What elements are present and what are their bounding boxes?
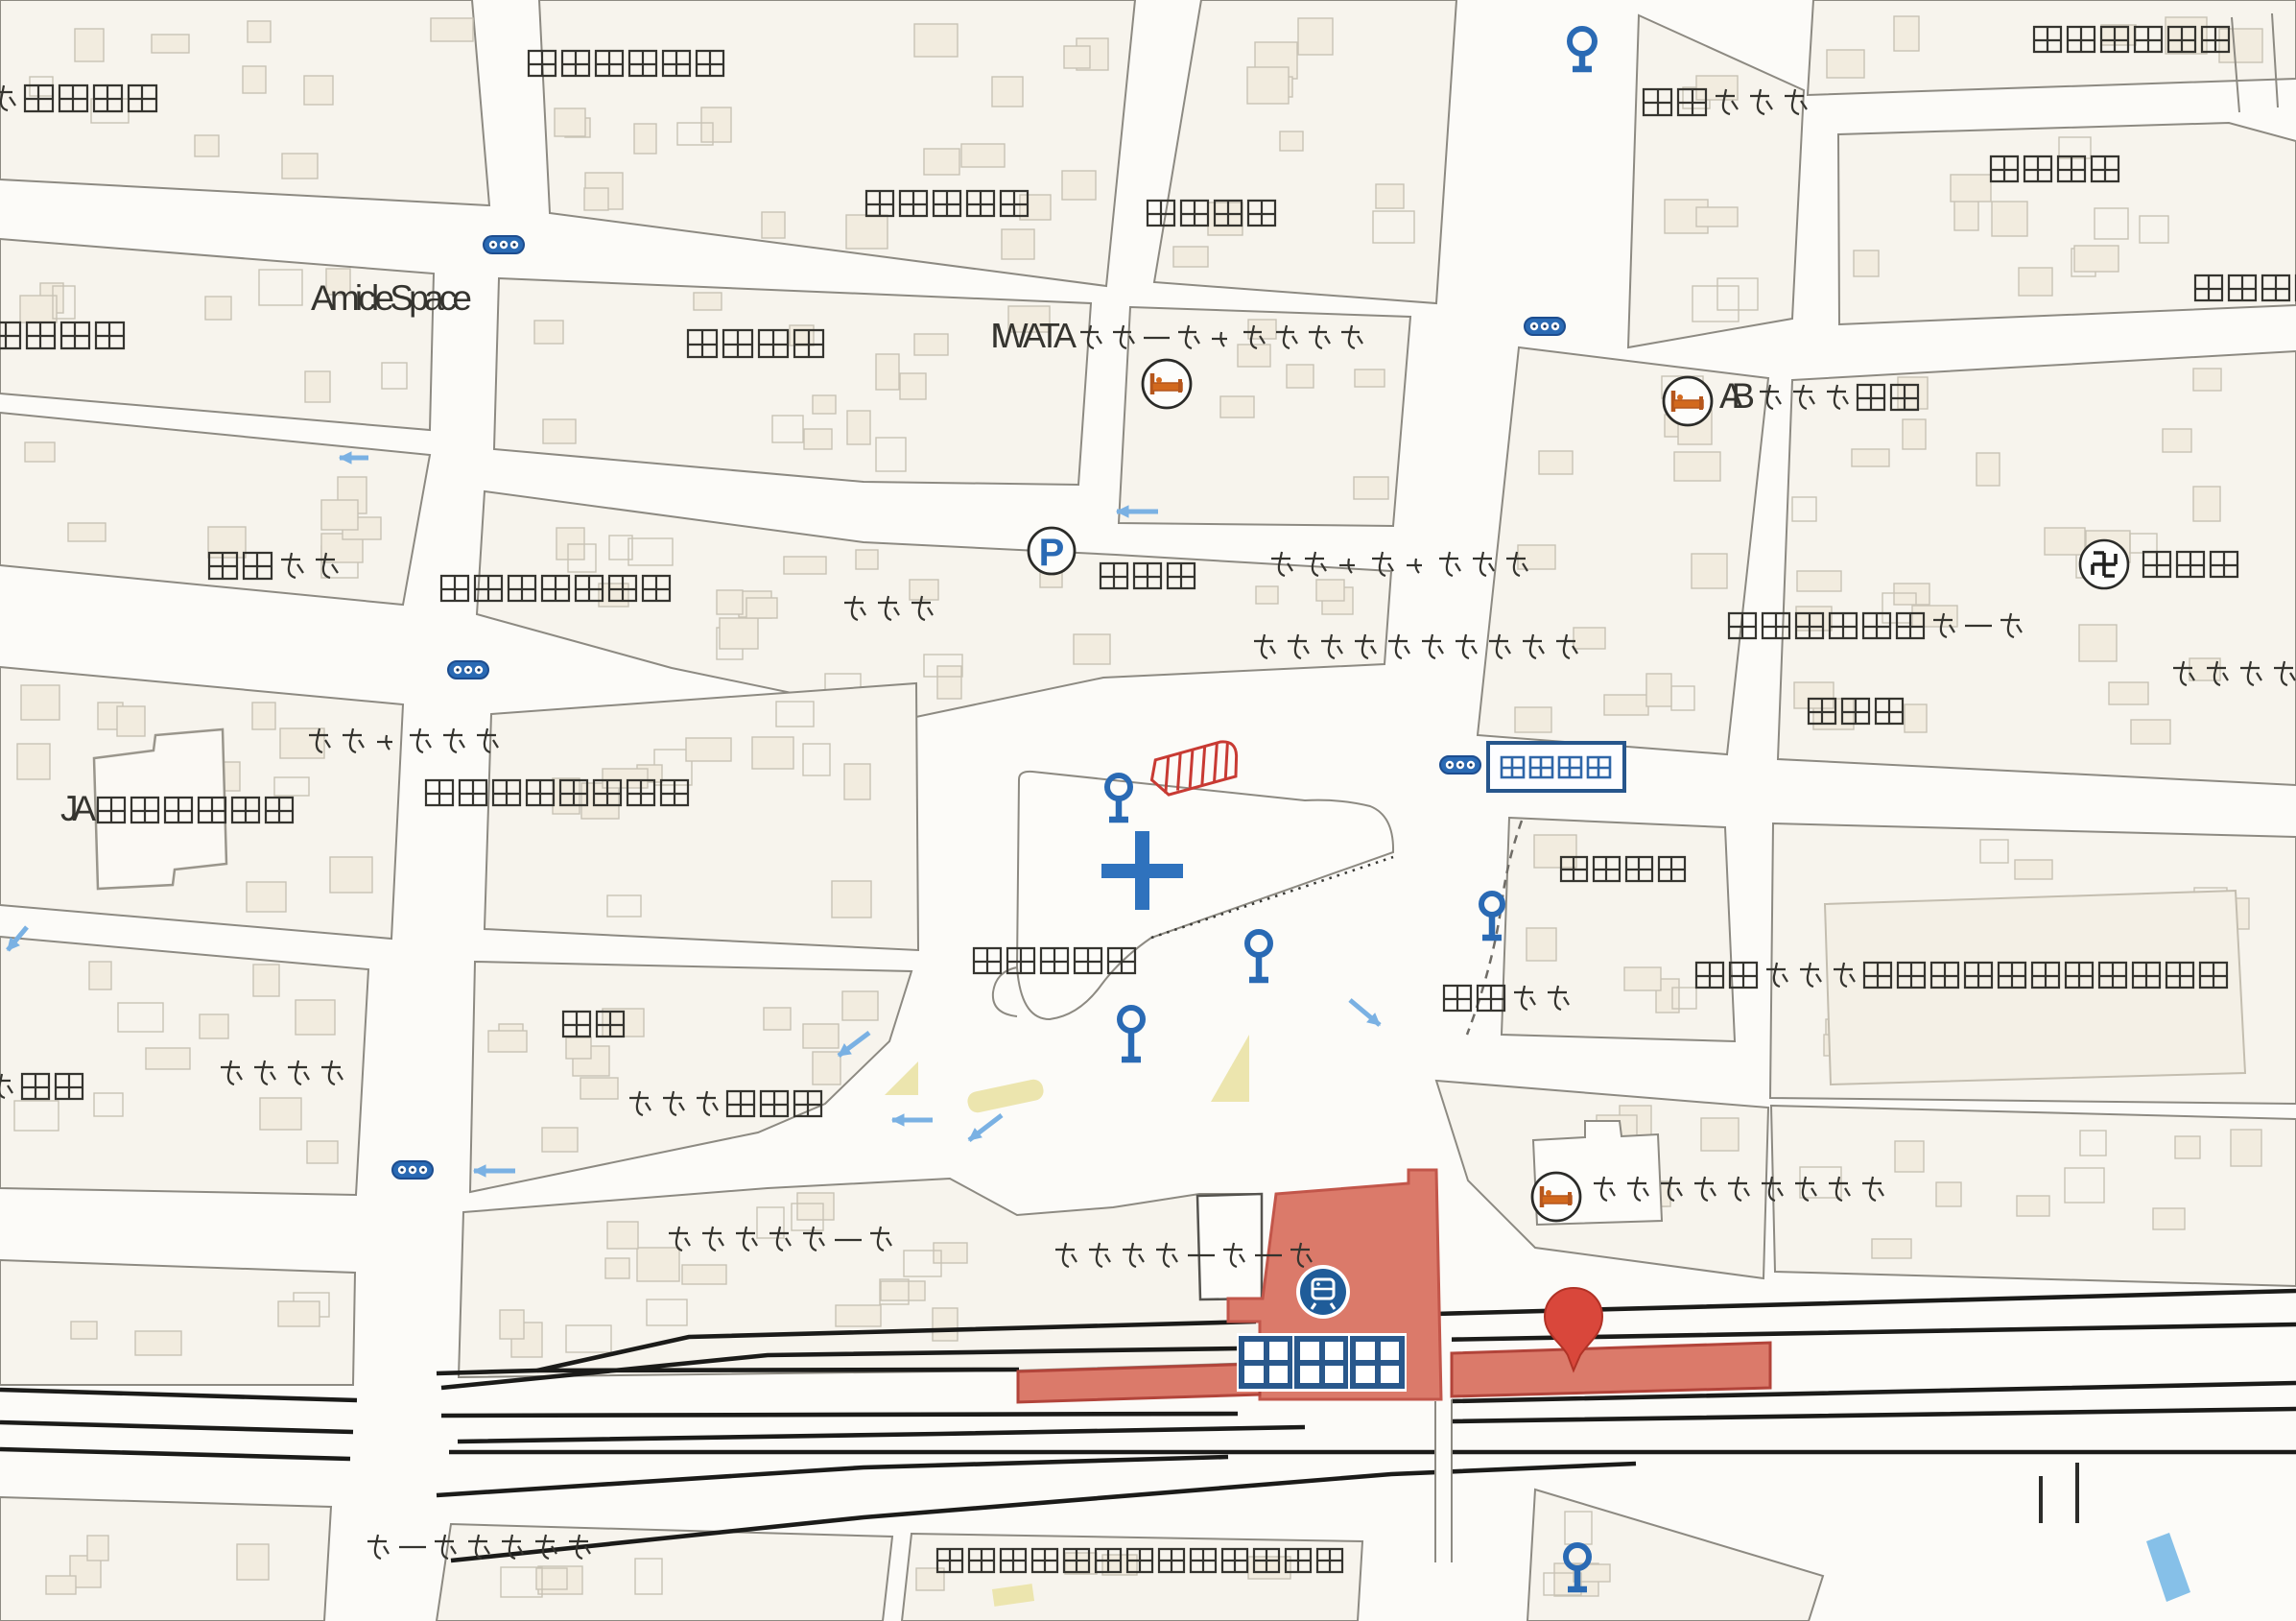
svg-text:IWATA: IWATA	[990, 316, 1077, 355]
svg-text:P: P	[1039, 532, 1065, 574]
svg-text:JA: JA	[60, 789, 96, 828]
svg-text:AmicleSpace: AmicleSpace	[311, 278, 472, 318]
svg-text:AB: AB	[1719, 376, 1755, 416]
